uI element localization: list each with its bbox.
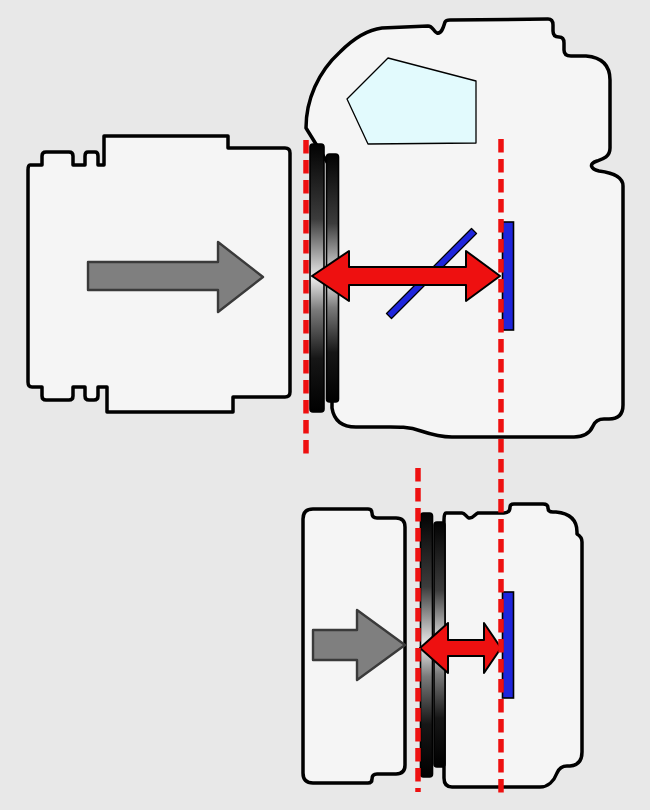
flange-distance-diagram bbox=[0, 0, 650, 810]
mirrorless-sensor bbox=[503, 592, 514, 698]
mirrorless-panel bbox=[303, 504, 582, 787]
slr-sensor bbox=[503, 222, 514, 330]
